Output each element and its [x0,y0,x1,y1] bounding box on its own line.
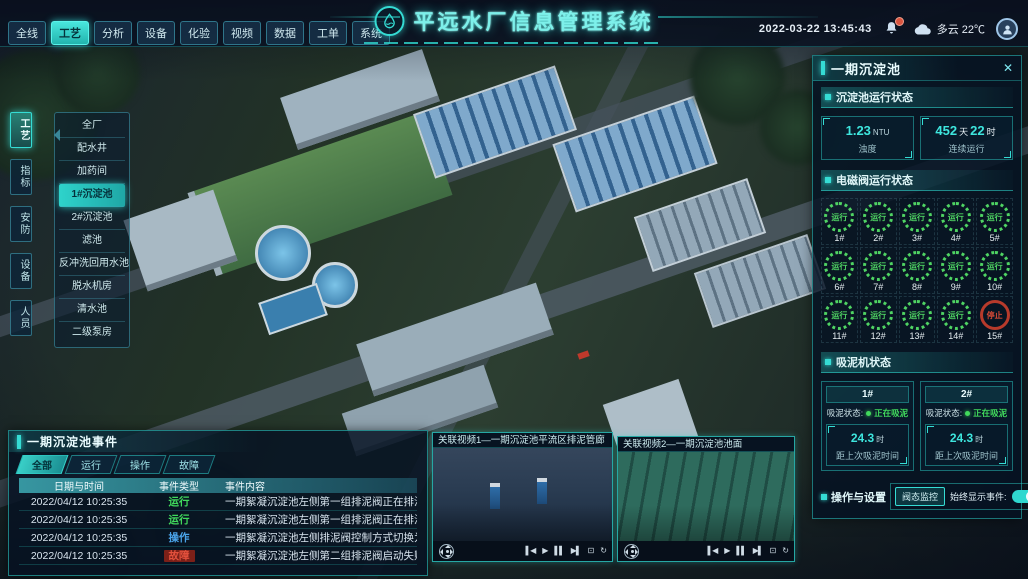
valve-id: 14# [938,331,973,341]
video-2-feed[interactable] [618,452,794,541]
weather-text: 多云 22℃ [937,21,985,37]
map-building-green-roof [187,112,452,277]
events-table-header: 日期与时间 事件类型 事件内容 [19,478,417,493]
events-panel: 一期沉淀池事件 全部 运行 操作 故障 日期与时间 事件类型 事件内容 2022… [8,430,428,576]
valve-id: 10# [977,282,1012,292]
nav-gongyi[interactable]: 工艺 [51,21,89,45]
menu-item-clear-water-pool[interactable]: 清水池 [59,299,125,322]
machine-status-value: 正在吸泥 [874,407,908,419]
event-datetime: 2022/04/12 10:25:35 [19,532,139,544]
side-tab-bar: 工艺 指标 安防 设备 人员 [10,112,32,336]
valve-state: 运行 [870,261,886,272]
close-icon[interactable]: ✕ [1003,61,1013,75]
runtime-card: 452天22时 连续运行 [920,116,1013,160]
machine-status-label: 吸泥状态: [827,407,863,419]
valve-gauge[interactable]: 运行10# [976,247,1013,294]
section-heading-valves: 电磁阀运行状态 [821,170,1013,191]
event-datetime: 2022/04/12 10:25:35 [19,496,139,508]
menu-item-backwash-pool[interactable]: 反冲洗回用水池 [59,253,125,276]
valve-state: 运行 [831,261,847,272]
menu-item-sed-tank-1[interactable]: 1#沉淀池 [59,184,125,207]
title-decoration [364,42,664,44]
show-events-toggle-label: 始终显示事件: [950,490,1007,503]
valve-state: 运行 [909,310,925,321]
fullscreen-icon[interactable]: ⊡ [588,547,594,555]
valve-id: 4# [938,233,973,243]
skip-back-icon[interactable]: ▌◀ [525,547,535,555]
valve-state: 运行 [948,310,964,321]
ptz-dpad-icon[interactable] [439,544,454,559]
skip-back-icon[interactable]: ▌◀ [707,547,717,555]
play-icon[interactable]: ▶ [542,547,547,555]
event-type-badge: 运行 [169,496,190,508]
valve-state: 运行 [987,261,1003,272]
valve-id: 2# [861,233,896,243]
machine-stat-unit: 时 [876,435,884,444]
cloud-icon [912,23,932,36]
events-header: 一期沉淀池事件 [9,431,427,452]
machine-stat-card: 24.3时 距上次吸泥时间 [826,424,909,466]
valve-gauge[interactable]: 运行12# [860,296,897,343]
valve-gauge[interactable]: 运行8# [899,247,936,294]
event-content: 一期絮凝沉淀池左侧第二组排泥阀启动失败 [219,548,417,563]
map-building [280,49,440,150]
event-type-badge: 运行 [169,514,190,526]
valve-id: 5# [977,233,1012,243]
header-status-cluster: 2022-03-22 13:45:43 多云 22℃ [759,18,1018,40]
status-dot-icon [965,411,970,416]
page-title: 平远水厂信息管理系统 [414,6,654,36]
valve-state: 运行 [948,261,964,272]
datetime-display: 2022-03-22 13:45:43 [759,23,872,35]
ptz-dpad-icon[interactable] [624,544,639,559]
operations-settings-row: 操作与设置 阀态监控 始终显示事件: [821,483,1013,510]
menu-item-distribution-well[interactable]: 配水井 [59,138,125,161]
machine-id: 2# [925,386,1008,403]
valve-state: 运行 [909,212,925,223]
valve-state: 停止 [987,310,1003,321]
map-building [356,283,554,397]
event-row[interactable]: 2022/04/12 10:25:35 操作 一期絮凝沉淀池左侧排泥阀控制方式切… [19,529,417,547]
machine-stat-label: 距上次吸泥时间 [827,449,908,462]
runtime-hours: 22 [970,123,984,138]
event-content: 一期絮凝沉淀池左侧第一组排泥阀正在排泥 [219,494,417,509]
menu-item-sed-tank-2[interactable]: 2#沉淀池 [59,207,125,230]
machine-status-value: 正在吸泥 [973,407,1007,419]
skip-forward-icon[interactable]: ▶▌ [753,547,763,555]
side-tab-process[interactable]: 工艺 [10,112,32,148]
loop-icon[interactable]: ↻ [782,547,788,555]
main-nav: 全线 工艺 分析 设备 化验 视频 数据 工单 系统 [8,21,390,45]
column-header-datetime: 日期与时间 [19,478,139,493]
valve-state: 运行 [831,310,847,321]
events-table: 日期与时间 事件类型 事件内容 2022/04/12 10:25:35 运行 一… [19,478,417,565]
valve-gauge[interactable]: 运行13# [899,296,936,343]
machine-id: 1# [826,386,909,403]
side-tab-security[interactable]: 安防 [10,206,32,242]
valve-id: 3# [900,233,935,243]
valve-gauge[interactable]: 运行4# [937,198,974,245]
event-row[interactable]: 2022/04/12 10:25:35 运行 一期絮凝沉淀池左侧第一组排泥阀正在… [19,493,417,511]
event-row[interactable]: 2022/04/12 10:25:35 故障 一期絮凝沉淀池左侧第二组排泥阀启动… [19,547,417,565]
mud-machine-card-1: 1# 吸泥状态: 正在吸泥 24.3时 距上次吸泥时间 [821,381,914,471]
turbidity-value: 1.23 [846,123,871,138]
machine-stat-value: 24.3 [851,431,874,445]
event-row[interactable]: 2022/04/12 10:25:35 运行 一期絮凝沉淀池左侧第一组排泥阀正在… [19,511,417,529]
nav-gongdan[interactable]: 工单 [309,21,347,45]
machine-status-label: 吸泥状态: [926,407,962,419]
side-tab-personnel[interactable]: 人员 [10,300,32,336]
valve-id: 12# [861,331,896,341]
valve-gauge[interactable]: 运行5# [976,198,1013,245]
mud-machine-card-2: 2# 吸泥状态: 正在吸泥 24.3时 距上次吸泥时间 [920,381,1013,471]
nav-quanxian[interactable]: 全线 [8,21,46,45]
machine-stat-unit: 时 [975,435,983,444]
valve-state: 运行 [948,212,964,223]
tab-all[interactable]: 全部 [16,455,69,474]
video-1-title: 关联视频1—一期沉淀池平流区排泥管廊 [433,433,612,448]
valve-gauge[interactable]: 运行11# [821,296,858,343]
side-tab-equipment[interactable]: 设备 [10,253,32,289]
map-filter-tanks [634,178,766,272]
notification-bell-icon[interactable] [883,20,901,38]
loop-icon[interactable]: ↻ [600,547,606,555]
valve-id: 8# [900,282,935,292]
dashboard: 全线 工艺 分析 设备 化验 视频 数据 工单 系统 平远水厂信息管理系统 20… [0,0,1028,579]
video-1-feed[interactable] [433,448,612,541]
valve-state: 运行 [987,212,1003,223]
water-drop-logo-icon [375,6,405,36]
tab-running[interactable]: 运行 [65,455,118,474]
video-2-title: 关联视频2—一期沉淀池池面 [618,437,794,452]
events-title: 一期沉淀池事件 [27,433,118,450]
event-filter-tabs: 全部 运行 操作 故障 [19,455,417,474]
map-filter-tanks [413,65,577,178]
nav-huayan[interactable]: 化验 [180,21,218,45]
valve-state: 运行 [831,212,847,223]
video-shade [433,448,612,541]
tab-fault[interactable]: 故障 [163,455,216,474]
turbidity-label: 浊度 [824,142,911,155]
turbidity-card: 1.23NTU 浊度 [821,116,914,160]
runtime-days-unit: 天 [959,127,968,137]
video-1-controls: ▌◀ ▶ ▌▌ ▶▌ ⊡ ↻ [433,541,612,561]
valve-status-grid: 运行1# 运行2# 运行3# 运行4# 运行5# 运行6# 运行7# 运行8# … [821,198,1013,343]
fullscreen-icon[interactable]: ⊡ [770,547,776,555]
nav-fenxi[interactable]: 分析 [94,21,132,45]
map-pool [258,283,328,335]
map-filter-tanks [552,96,717,213]
notification-badge [895,17,904,26]
event-datetime: 2022/04/12 10:25:35 [19,514,139,526]
user-avatar-icon[interactable] [996,18,1018,40]
valve-gauge[interactable]: 运行6# [821,247,858,294]
menu-item-dewatering-room[interactable]: 脱水机房 [59,276,125,299]
operations-box: 阀态监控 始终显示事件: [890,483,1028,510]
valve-state: 运行 [909,261,925,272]
video-shade [618,452,794,541]
menu-item-secondary-pump[interactable]: 二级泵房 [59,322,125,345]
event-content: 一期絮凝沉淀池左侧第一组排泥阀正在排泥 [219,512,417,527]
event-content: 一期絮凝沉淀池左侧排泥阀控制方式切换为手动 [219,530,417,545]
nav-shebei[interactable]: 设备 [137,21,175,45]
runtime-hours-unit: 时 [987,127,996,137]
valve-monitor-button[interactable]: 阀态监控 [895,487,945,506]
accent-bar [17,435,21,449]
valve-id: 11# [822,331,857,341]
map-vehicle [577,350,589,359]
pause-icon[interactable]: ▌▌ [554,547,563,555]
tab-operation[interactable]: 操作 [114,455,167,474]
valve-gauge[interactable]: 运行3# [899,198,936,245]
section-heading-operations: 操作与设置 [821,489,886,505]
skip-forward-icon[interactable]: ▶▌ [571,547,581,555]
sedimentation-detail-panel: 一期沉淀池 ✕ 沉淀池运行状态 1.23NTU 浊度 452天22时 连续运行 … [812,55,1022,519]
menu-item-whole-plant[interactable]: 全厂 [59,115,125,138]
linked-video-1: 关联视频1—一期沉淀池平流区排泥管廊 ▌◀ ▶ ▌▌ ▶▌ ⊡ ↻ [432,432,613,562]
section-heading-mud-machines: 吸泥机状态 [821,352,1013,373]
status-dot-icon [866,411,871,416]
valve-id: 7# [861,282,896,292]
app-title-block: 平远水厂信息管理系统 [375,6,654,36]
machine-stat-card: 24.3时 距上次吸泥时间 [925,424,1008,466]
event-type-badge: 故障 [164,550,195,562]
top-header: 全线 工艺 分析 设备 化验 视频 数据 工单 系统 平远水厂信息管理系统 20… [0,0,1028,47]
video-2-controls: ▌◀ ▶ ▌▌ ▶▌ ⊡ ↻ [618,541,794,561]
valve-gauge-stopped[interactable]: 停止15# [976,296,1013,343]
runtime-label: 连续运行 [923,142,1010,155]
valve-gauge[interactable]: 运行14# [937,296,974,343]
nav-shuju[interactable]: 数据 [266,21,304,45]
nav-shipin[interactable]: 视频 [223,21,261,45]
valve-id: 15# [977,331,1012,341]
valve-gauge[interactable]: 运行9# [937,247,974,294]
accent-bar [821,61,825,75]
runtime-days: 452 [935,123,957,138]
panel-header: 一期沉淀池 ✕ [813,56,1021,81]
map-round-pool [255,225,311,281]
weather-display: 多云 22℃ [912,21,985,37]
valve-gauge[interactable]: 运行7# [860,247,897,294]
machine-stat-label: 距上次吸泥时间 [926,449,1007,462]
valve-state: 运行 [870,310,886,321]
valve-id: 13# [900,331,935,341]
machine-stat-value: 24.3 [950,431,973,445]
valve-gauge[interactable]: 运行1# [821,198,858,245]
column-header-type: 事件类型 [139,478,219,493]
mud-machine-cards: 1# 吸泥状态: 正在吸泥 24.3时 距上次吸泥时间 2# 吸泥状态: 正在吸… [821,381,1013,471]
column-header-content: 事件内容 [219,478,417,493]
map-building [123,190,237,292]
show-events-toggle[interactable] [1012,490,1028,503]
side-tab-indicators[interactable]: 指标 [10,159,32,195]
panel-title: 一期沉淀池 [831,59,901,78]
turbidity-unit: NTU [873,128,889,137]
menu-item-filter-tank[interactable]: 滤池 [59,230,125,253]
event-type-badge: 操作 [169,532,190,544]
map-filter-tanks [694,234,826,328]
menu-item-dosing-room[interactable]: 加药间 [59,161,125,184]
linked-video-2: 关联视频2—一期沉淀池池面 ▌◀ ▶ ▌▌ ▶▌ ⊡ ↻ [617,436,795,562]
event-datetime: 2022/04/12 10:25:35 [19,550,139,562]
map-round-pool [312,262,358,308]
valve-id: 1# [822,233,857,243]
process-area-menu: 全厂 配水井 加药间 1#沉淀池 2#沉淀池 滤池 反冲洗回用水池 脱水机房 清… [54,112,130,348]
play-icon[interactable]: ▶ [724,547,729,555]
valve-id: 6# [822,282,857,292]
sed-status-stats: 1.23NTU 浊度 452天22时 连续运行 [821,116,1013,160]
valve-gauge[interactable]: 运行2# [860,198,897,245]
valve-id: 9# [938,282,973,292]
section-heading-sed-status: 沉淀池运行状态 [821,87,1013,108]
valve-state: 运行 [870,212,886,223]
pause-icon[interactable]: ▌▌ [736,547,745,555]
